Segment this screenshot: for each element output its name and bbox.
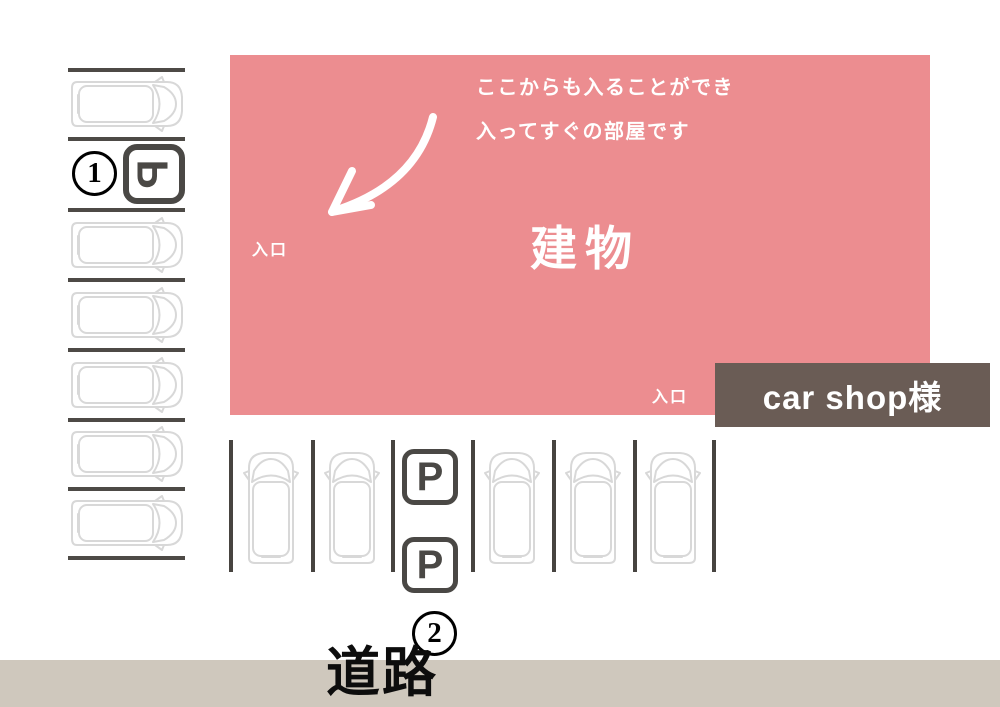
road-label: 道路 <box>326 646 438 700</box>
parking-sign-upper: P <box>402 449 458 505</box>
building-block: ここからも入ることができ 入ってすぐの部屋です 建物 入口 入口 <box>230 55 930 415</box>
car-top-view <box>563 446 623 570</box>
car-top-view <box>65 355 189 415</box>
car-top-view <box>241 446 301 570</box>
parking-line <box>391 440 395 572</box>
entrance-arrow-icon <box>230 55 530 255</box>
parking-line <box>471 440 475 572</box>
parking-line <box>229 440 233 572</box>
parking-map: 1 P ここからも入ることができ 入ってすぐの部屋です 建物 入口 入口 car… <box>0 0 1000 707</box>
p-letter: P <box>417 543 444 588</box>
road-strip <box>0 660 1000 707</box>
parking-line <box>68 68 185 72</box>
car-top-view <box>65 215 189 275</box>
parking-line <box>68 278 185 282</box>
car-top-view <box>482 446 542 570</box>
parking-line <box>552 440 556 572</box>
entrance-left-label: 入口 <box>252 236 288 260</box>
parking-line <box>68 208 185 212</box>
car-top-view <box>65 493 189 553</box>
parking-line <box>68 487 185 491</box>
parking-line <box>68 348 185 352</box>
parking-area-1-marker: 1 <box>72 151 117 196</box>
parking-line <box>633 440 637 572</box>
parking-line <box>68 556 185 560</box>
car-shop-box: car shop様 <box>715 363 990 427</box>
parking-sign-rotated: P <box>123 144 185 204</box>
parking-line <box>68 418 185 422</box>
car-top-view <box>65 74 189 134</box>
parking-line <box>311 440 315 572</box>
car-top-view <box>643 446 703 570</box>
p-letter: P <box>132 159 176 188</box>
car-top-view <box>65 285 189 345</box>
parking-sign-lower: P <box>402 537 458 593</box>
building-title: 建物 <box>530 210 640 279</box>
car-shop-label: car shop様 <box>763 371 943 419</box>
p-letter: P <box>417 455 444 500</box>
entrance-bottom-label: 入口 <box>652 383 688 407</box>
parking-area-1-number: 1 <box>87 157 102 190</box>
car-top-view <box>322 446 382 570</box>
parking-line <box>68 137 185 141</box>
car-top-view <box>65 424 189 484</box>
parking-line <box>712 440 716 572</box>
